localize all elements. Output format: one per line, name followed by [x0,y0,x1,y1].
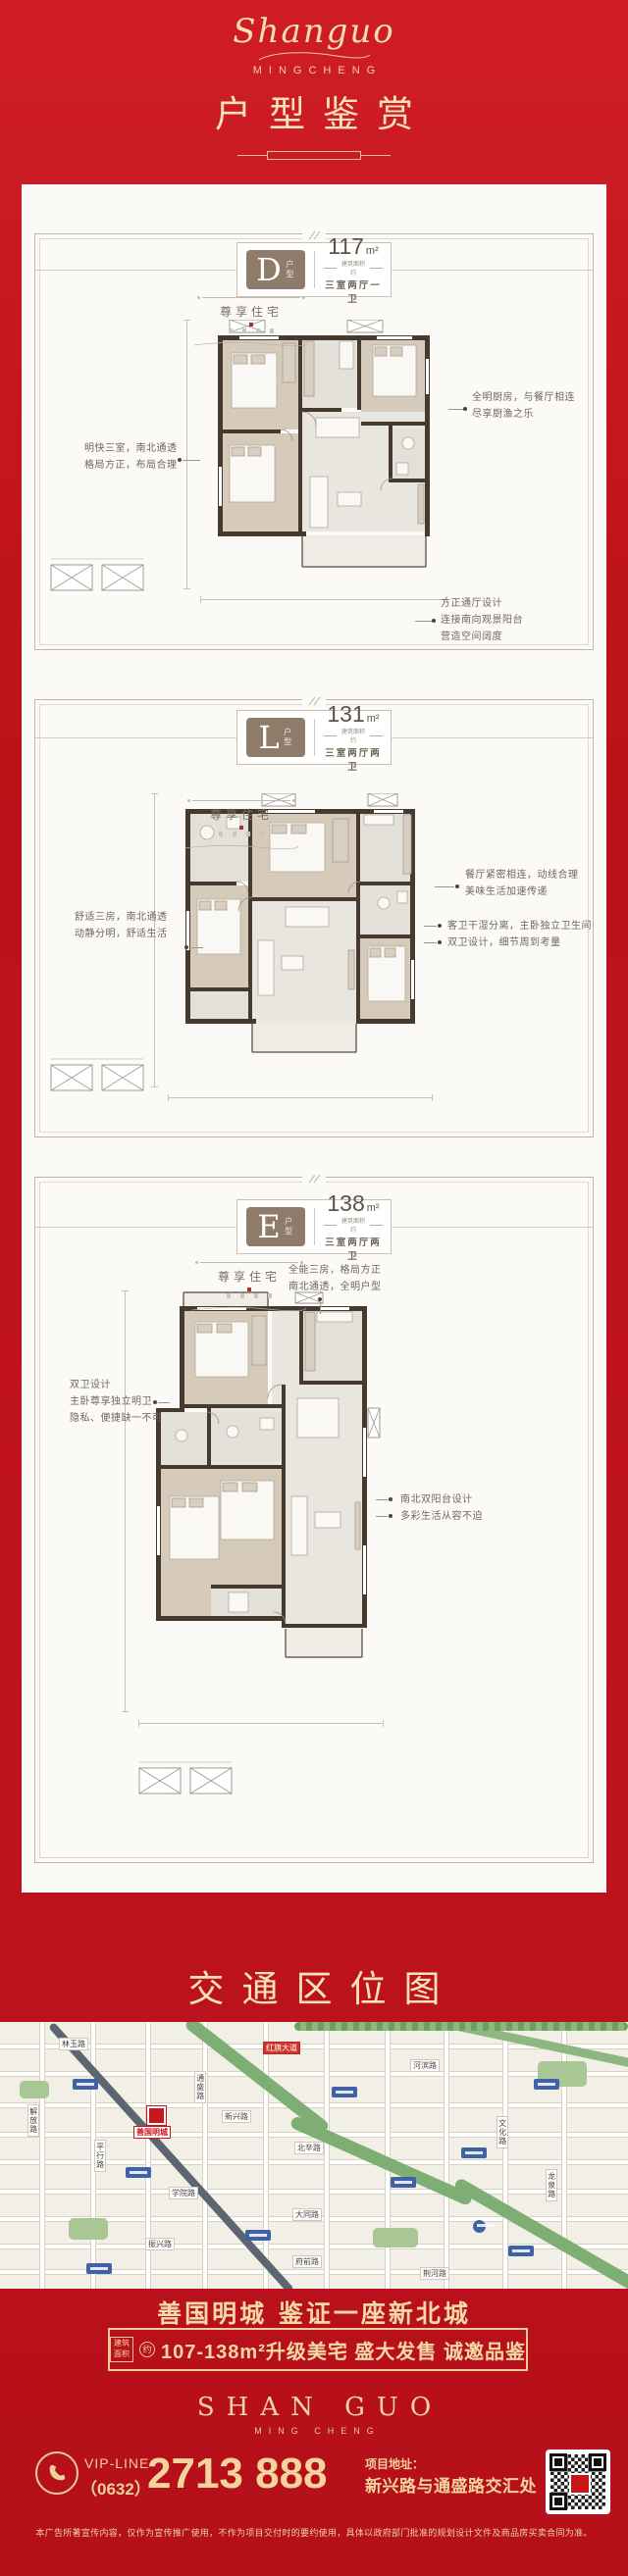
plan-letter-suffix: 户型 [284,1217,294,1237]
annotation-line: 营造空间阔度 [441,629,523,645]
callout-dot [438,924,442,928]
plan-room-count: 三室两厅两卫 [324,1235,383,1262]
map-road-label: 平行路 [94,2140,106,2172]
annotation-line: 方正通厅设计 [441,595,523,612]
plan-letter-box: L 户型 [246,718,305,757]
plan-letter-suffix: 户型 [283,728,293,747]
premium-mark: 尊享住宅 [183,800,300,856]
annotation-line: 双卫设计 [70,1377,163,1393]
dimension-line [200,599,447,600]
callout-line [435,886,454,887]
vip-line-label: VIP-LINE [84,2455,149,2471]
plan-letter-box: E 户型 [246,1207,305,1246]
plan-badge: D 户型 117m² 建筑面积约 三室两厅一卫 [236,242,392,297]
badge-info: 138m² 建筑面积约 三室两厅两卫 [324,1191,391,1262]
project-label: 善国明城 [133,2126,171,2139]
map-road-label: 府前路 [292,2255,322,2268]
annotation-line: 双卫设计，细节周到考量 [447,934,592,951]
floor-plan-card-d: D 户型 117m² 建筑面积约 三室两厅一卫 尊享住宅 [34,233,594,650]
premium-mark: 尊享住宅 [192,297,310,353]
plan-letter: L [258,722,279,753]
brand-logo-subtitle: MINGCHENG [0,65,628,76]
badge-word-bottom: 面积 [111,2349,132,2359]
phone-icon [35,2451,78,2495]
plan-letter: D [256,254,282,285]
qr-center-logo [569,2473,591,2495]
badge-word-top: 建筑 [111,2338,132,2349]
mark-swoosh-icon [183,843,300,851]
poi-marker [534,2079,559,2090]
poi-marker [73,2079,98,2090]
plan-area-value: 138 [327,1190,364,1216]
mark-ticks [183,832,300,836]
map-road-label: 河滨路 [410,2059,440,2072]
annotation-left: 双卫设计 主卧尊享独立明卫 隐私、便捷缺一不可 [70,1377,163,1427]
annotation-line: 南北通透，全明户型 [288,1279,382,1295]
callout-line [415,621,432,622]
plan-area-note: 建筑面积约 [324,259,383,277]
plan-badge: L 户型 131m² 建筑面积约 三室两厅两卫 [236,710,392,765]
plan-letter-suffix: 户型 [285,260,295,279]
annotation-line: 格局方正，布局合理 [84,457,178,474]
divider-rect [267,151,361,160]
callout-line [158,1402,170,1403]
annotation-line: 多彩生活从容不迫 [400,1508,483,1525]
park [20,2081,49,2098]
dimension-line [138,1723,384,1724]
approx-circle: 约 [139,2342,155,2357]
poi-marker [332,2087,357,2097]
plan-area: 138m² [324,1191,383,1215]
map-road-label: 北辛路 [294,2142,324,2154]
callout-dot [389,1514,392,1518]
tree-row [294,2022,628,2031]
callout-line [424,942,437,943]
annotation-line: 尽享厨渔之乐 [472,406,575,423]
ac-units-icon [50,553,144,592]
badge-divider [314,251,315,288]
map-road [263,2022,269,2289]
floor-plan-d [200,320,447,589]
map-road-label: 文化路 [497,2116,508,2148]
callout-dot [184,945,188,949]
plan-room-count: 三室两厅两卫 [324,745,383,773]
map-road-label: 龙泉路 [546,2169,557,2201]
area-note-badge: 建筑 面积 [110,2337,133,2362]
annotation-line: 美味生活加速传递 [465,884,579,900]
annotation-right-top: 餐厅紧密相连，动线合理 美味生活加速传递 [465,867,579,900]
annotation-right-bottom: 客卫干湿分离，主卧独立卫生间 双卫设计，细节周到考量 [447,918,592,951]
plan-area-unit: m² [367,1202,380,1214]
plan-area-note: 建筑面积约 [324,727,383,744]
callout-line [320,1302,321,1314]
address-label: 项目地址： [365,2455,424,2472]
callout-dot [153,1400,157,1404]
poi-marker [461,2147,487,2158]
plan-letter-box: D 户型 [246,250,305,289]
qr-finder-icon [589,2453,606,2471]
map-road [202,2022,208,2289]
annotation-right-bottom: 方正通厅设计 连接南向观景阳台 营造空间阔度 [441,595,523,645]
annotation-line: 连接南向观景阳台 [441,612,523,629]
callout-line [189,947,203,948]
plan-area-value: 131 [327,701,364,727]
callout-line [376,1516,388,1517]
map-road [39,2022,45,2289]
mark-line [200,1262,298,1263]
map-road-label: 大同路 [292,2208,322,2221]
brand-english-sub: MING CHENG [0,2426,628,2436]
plan-area-note: 建筑面积约 [324,1216,383,1234]
poi-marker [473,2220,486,2233]
plan-area-unit: m² [366,245,379,257]
dimension-line [168,1097,433,1098]
park [373,2228,418,2248]
callout-dot [389,1497,392,1501]
map-road-label: 林玉路 [59,2038,88,2050]
mark-swoosh-icon [192,340,310,348]
map-road-label: 学院路 [169,2187,198,2199]
badge-divider [314,1208,315,1245]
callout-dot [318,1297,322,1301]
phone-area-code: （0632） [80,2475,151,2500]
annotation-line: 隐私、便捷缺一不可 [70,1410,163,1427]
plan-area-value: 117 [328,233,364,259]
floor-plan-card-l: L 户型 131m² 建筑面积约 三室两厅两卫 尊享住宅 [34,699,594,1137]
map-road-label: 荆河路 [420,2267,449,2280]
mark-square-icon [247,1288,251,1291]
plan-room-count: 三室两厅一卫 [324,278,383,305]
badge-info: 131m² 建筑面积约 三室两厅两卫 [324,702,391,773]
badge-info: 117m² 建筑面积约 三室两厅一卫 [324,234,391,305]
map-road-label: 振兴路 [145,2238,175,2250]
mark-label: 尊享住宅 [183,806,300,823]
annotation-line: 南北双阳台设计 [400,1491,483,1508]
project-marker-icon [147,2106,166,2125]
map-road [324,2022,330,2289]
mark-line [192,800,290,801]
annotation-line: 主卧尊享独立明卫 [70,1393,163,1410]
sales-banner-text: 107-138m²升级美宅 盛大发售 诚邀品鉴 [161,2336,526,2364]
map-road-label: 通盛路 [194,2071,206,2103]
annotation-right-bottom: 南北双阳台设计 多彩生活从容不迫 [400,1491,483,1525]
legal-disclaimer: 本广告所著宣传内容，仅作为宣传推广使用，不作为项目交付时的要约使用，具体以政府部… [27,2526,601,2539]
dimension-line [186,320,187,589]
floor-plan-e [138,1290,384,1712]
callout-dot [463,407,467,411]
plan-area-unit: m² [367,713,380,725]
annotation-left: 明快三室，南北通透 格局方正，布局合理 [84,440,178,474]
mark-label: 尊享住宅 [192,303,310,320]
qr-code[interactable] [546,2450,610,2514]
annotation-line: 客卫干湿分离，主卧独立卫生间 [447,918,592,934]
annotation-line: 餐厅紧密相连，动线合理 [465,867,579,884]
border-break-icon [302,229,326,240]
mark-swoosh-icon [190,1305,308,1313]
footer-slogan: 善国明城 鉴证一座新北城 [0,2295,628,2330]
border-break-icon [302,695,326,706]
map-road-label: 新兴路 [222,2110,251,2123]
callout-dot [438,940,442,944]
poi-marker [126,2167,151,2178]
badge-divider [314,719,315,756]
dimension-line [125,1290,126,1712]
page-title: 户型鉴赏 [0,84,628,137]
callout-dot [455,884,459,888]
annotation-line: 全明厨房，与餐厅相连 [472,389,575,406]
annotation-line: 全能三房，格局方正 [288,1262,382,1279]
callout-line [424,926,437,927]
ac-units-icon [50,1053,144,1092]
brand-english: SHAN GUO [0,2393,628,2422]
location-map: 林玉路 红旗大道 河滨路 解放路 平行路 通盛路 新兴路 北辛路 文化路 龙泉路… [0,2022,628,2289]
callout-line [376,1499,388,1500]
annotation-line: 动静分明，舒适生活 [75,926,168,942]
map-section-title: 交通区位图 [0,1959,628,2012]
callout-line [448,409,463,410]
park [69,2218,108,2240]
mark-square-icon [239,826,243,830]
floor-plan-card-e: E 户型 138m² 建筑面积约 三室两厅两卫 尊享住宅 全能三房，格局方正 南… [34,1177,594,1863]
phone-number[interactable]: 2713 888 [147,2450,328,2499]
poi-marker [86,2263,112,2274]
poi-marker [508,2246,534,2256]
poi-marker [245,2230,271,2241]
annotation-line: 舒适三房，南北通透 [75,909,168,926]
mark-line [202,297,300,298]
callout-line [183,460,200,461]
plan-letter: E [257,1211,280,1242]
annotation-top-right: 全能三房，格局方正 南北通透，全明户型 [288,1262,382,1295]
sales-banner: 建筑 面积 约 107-138m²升级美宅 盛大发售 诚邀品鉴 [108,2328,528,2371]
divider-line [237,155,267,156]
callout-dot [178,458,182,462]
mark-square-icon [249,323,253,327]
poi-marker [391,2177,416,2188]
title-divider [0,151,628,160]
map-road [444,2022,449,2289]
floor-plans-panel: D 户型 117m² 建筑面积约 三室两厅一卫 尊享住宅 [22,184,606,1893]
map-road-label: 解放路 [27,2104,39,2137]
annotation-right-top: 全明厨房，与餐厅相连 尽享厨渔之乐 [472,389,575,423]
plan-area: 131m² [324,702,383,726]
plan-area: 117m² [324,234,383,258]
map-main-road-label: 红旗大道 [263,2042,300,2054]
qr-finder-icon [549,2493,567,2510]
address-value: 新兴路与通盛路交汇处 [365,2472,537,2497]
plan-badge: E 户型 138m² 建筑面积约 三室两厅两卫 [236,1199,392,1254]
brand-logo-script: Shanguo [0,12,628,51]
qr-finder-icon [549,2453,567,2471]
annotation-line: 明快三室，南北通透 [84,440,178,457]
mark-ticks [192,328,310,333]
border-break-icon [302,1173,326,1184]
divider-line [361,155,391,156]
annotation-left: 舒适三房，南北通透 动静分明，舒适生活 [75,909,168,942]
callout-dot [432,619,436,623]
ac-units-icon [138,1756,233,1795]
